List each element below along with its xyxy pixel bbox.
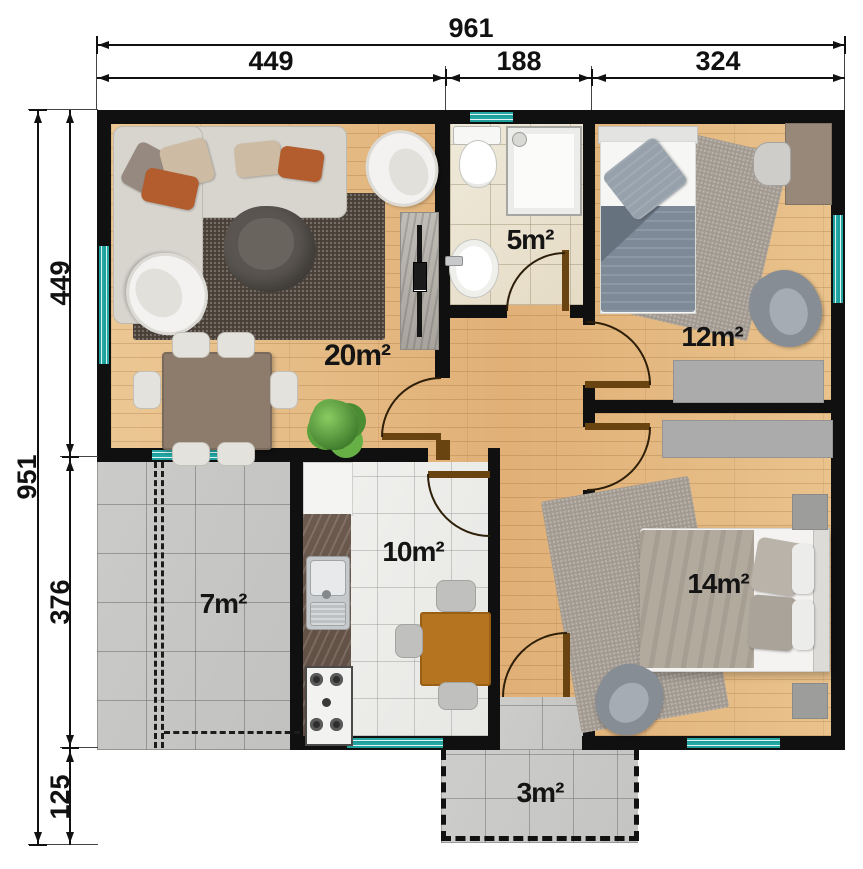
stove-burner-3 xyxy=(310,718,323,731)
bathroom-door-leaf xyxy=(562,250,569,311)
stove-burner-4 xyxy=(330,718,343,731)
wall-kitchen-hall xyxy=(488,448,500,750)
bed-double-pillow-2 xyxy=(747,594,798,652)
terrace-roofline-1 xyxy=(154,462,157,748)
bedroom-large-window xyxy=(687,738,780,748)
wall-bathroom-jamb xyxy=(570,305,583,318)
plant xyxy=(309,400,359,450)
arrow-left-total-top xyxy=(34,112,42,123)
dim-top-seg2: 188 xyxy=(479,47,559,75)
wall-living-terrace xyxy=(97,448,428,462)
dim-left-seg3: 125 xyxy=(46,757,74,837)
bedroom-small-door-leaf xyxy=(585,381,650,388)
bedroom-small-wardrobe xyxy=(673,360,824,403)
living-door-leaf xyxy=(382,433,441,440)
tv-box xyxy=(413,262,427,292)
porch-area-label: 3m² xyxy=(505,779,575,807)
arrow-lseg2-bottom xyxy=(66,735,74,746)
bedroom-small-area-label: 12m² xyxy=(667,323,757,351)
sofa-pillow-cream-2 xyxy=(233,140,282,179)
dining-chair-6 xyxy=(270,371,298,409)
bedroom-large-area-label: 14m² xyxy=(673,570,763,598)
terrace-area-label: 7m² xyxy=(188,590,258,618)
desk-chair xyxy=(753,142,791,186)
stove-knob xyxy=(322,698,331,707)
bedroom-large-door-leaf xyxy=(585,423,650,430)
arrow-seg1-right xyxy=(433,74,444,82)
living-door-jamb xyxy=(436,440,450,460)
bathroom-area-label: 5m² xyxy=(495,226,565,254)
dim-line-top-segments xyxy=(97,77,845,79)
dining-chair-5 xyxy=(133,371,161,409)
dim-top-seg1: 449 xyxy=(231,47,311,75)
tick-left-457 xyxy=(62,456,79,458)
tick-left-total-bottom xyxy=(29,844,47,846)
bidet-tap xyxy=(445,256,463,266)
arrow-lseg2-top xyxy=(66,460,74,471)
bed-double-duvet xyxy=(640,530,754,668)
bedroom-large-wardrobe xyxy=(662,420,833,458)
dining-chair-2 xyxy=(217,332,255,358)
bidet xyxy=(449,239,499,298)
arrow-total-right xyxy=(833,41,844,49)
tick-total-right xyxy=(844,36,846,54)
kitchen-chair-left xyxy=(395,624,423,658)
dim-left-seg1: 449 xyxy=(46,243,74,323)
nightstand-bottom xyxy=(792,683,828,719)
dining-table xyxy=(162,352,272,450)
dining-chair-4 xyxy=(217,442,255,466)
bedroom-small-window xyxy=(833,215,843,303)
kitchen-table xyxy=(420,612,491,686)
sink-drainboard xyxy=(310,602,346,626)
terrace-roofline-bottom xyxy=(164,731,300,734)
tick-left-748 xyxy=(62,747,79,749)
dim-left-total: 951 xyxy=(13,437,41,517)
dim-top-seg3: 324 xyxy=(678,47,758,75)
floor-plan-canvas: 20m² 5m² 12m² 14m² 10m² 7m² 3m² xyxy=(0,0,863,869)
dim-top-total: 961 xyxy=(431,14,511,42)
nightstand-top xyxy=(792,494,828,530)
arrow-seg2-right xyxy=(579,74,590,82)
sofa-pillow-orange-2 xyxy=(277,145,325,183)
shower-drain xyxy=(512,132,527,147)
bed-double-headboard xyxy=(813,528,830,672)
tick-left-total-top xyxy=(29,109,47,111)
bed-double-pillow-3 xyxy=(792,544,814,594)
kitchen-area-label: 10m² xyxy=(368,538,458,566)
arrow-seg2-left xyxy=(449,74,460,82)
tick-seg-446 xyxy=(445,69,447,86)
arrow-seg3-right xyxy=(833,74,844,82)
kitchen-door-leaf xyxy=(428,471,490,478)
wall-center-upper xyxy=(583,110,595,325)
arrow-total-left xyxy=(98,41,109,49)
desk xyxy=(785,123,832,205)
stove-burner-2 xyxy=(330,673,343,686)
dining-chair-3 xyxy=(172,442,210,466)
arrow-seg1-left xyxy=(98,74,109,82)
wall-bathroom-bottom xyxy=(435,305,507,318)
kitchen-chair-bottom xyxy=(438,682,478,710)
living-area-label: 20m² xyxy=(312,342,402,370)
arrow-left-total-bottom xyxy=(34,832,42,843)
kitchen-window xyxy=(347,738,443,748)
dim-left-seg2: 376 xyxy=(46,562,74,642)
arrow-lseg1-top xyxy=(66,112,74,123)
wall-terrace-kitchen xyxy=(290,448,303,750)
vestibule-floor xyxy=(498,697,583,750)
kitchen-chair-top xyxy=(436,580,476,612)
bathroom-window xyxy=(470,112,513,122)
arrow-lseg1-bottom xyxy=(66,444,74,455)
wall-center-stub xyxy=(583,385,595,427)
kitchen-cabinet xyxy=(303,462,353,516)
tick-seg-592 xyxy=(591,69,593,86)
sink-faucet xyxy=(322,590,331,599)
stove-burner-1 xyxy=(310,673,323,686)
bed-double-pillow-4 xyxy=(792,600,814,650)
entry-door-leaf xyxy=(563,633,570,697)
toilet-bowl xyxy=(459,140,497,188)
arrow-seg3-left xyxy=(595,74,606,82)
terrace-roofline-2 xyxy=(161,462,164,748)
living-window-left xyxy=(99,246,109,364)
dining-chair-1 xyxy=(172,332,210,358)
wall-right xyxy=(831,110,845,750)
